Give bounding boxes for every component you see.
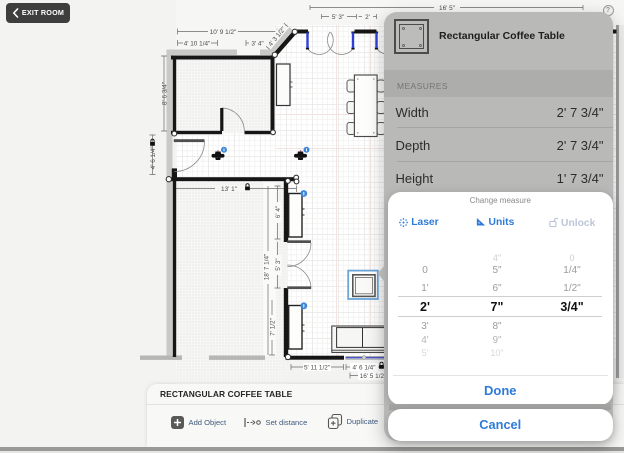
svg-text:3' 4": 3' 4" [251,41,263,48]
svg-text:4' 10 1/4": 4' 10 1/4" [184,41,211,48]
svg-text:4' 6 1/4": 4' 6 1/4" [352,365,375,372]
svg-text:8' 6 3/4": 8' 6 3/4" [162,82,169,105]
svg-text:5' 3": 5' 3" [275,258,282,270]
svg-text:5' 11 1/2": 5' 11 1/2" [304,365,330,372]
svg-text:6' 4": 6' 4" [275,206,282,218]
svg-text:7' 1/2": 7' 1/2" [270,318,277,336]
svg-text:5' 3": 5' 3" [332,14,344,21]
svg-text:4' 6 1/4": 4' 6 1/4" [150,146,157,169]
svg-text:16' 5 1/2": 16' 5 1/2" [360,373,387,380]
svg-text:18' 7 1/4": 18' 7 1/4" [264,254,271,281]
svg-text:10' 9 1/2": 10' 9 1/2" [210,29,237,36]
svg-text:16' 5": 16' 5" [439,5,455,12]
svg-text:13' 1": 13' 1" [221,186,237,193]
svg-text:2': 2' [365,14,370,21]
